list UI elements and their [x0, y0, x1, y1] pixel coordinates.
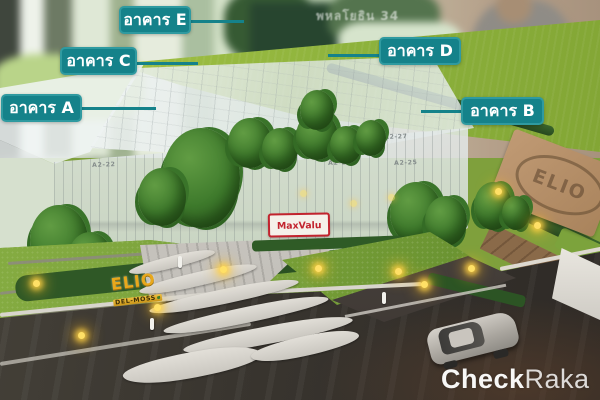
project-subtitle-label: DEL-MOSS — [115, 295, 156, 307]
model-tree — [138, 168, 186, 226]
window-signage-text: พหลโยธิน 34 — [316, 7, 400, 26]
roof-unit-label: A2-25 — [394, 159, 418, 167]
callout-building-a: อาคาร A — [1, 94, 82, 122]
interior-light — [388, 194, 395, 201]
model-tree — [300, 90, 334, 130]
model-light — [220, 266, 227, 273]
figurine — [150, 318, 154, 330]
watermark-light-text: Raka — [525, 364, 590, 394]
model-light — [78, 332, 85, 339]
model-light — [421, 281, 428, 288]
model-light — [495, 188, 502, 195]
maxvalu-sign-text: MaxValu — [277, 219, 322, 231]
callout-building-c: อาคาร C — [60, 47, 137, 75]
model-light — [315, 265, 322, 272]
model-tree — [502, 196, 530, 230]
model-tree — [356, 120, 386, 156]
figurine — [178, 256, 182, 268]
callout-line-building-b — [421, 110, 462, 113]
model-light — [33, 280, 40, 287]
callout-line-building-c — [136, 62, 198, 65]
interior-light — [350, 200, 357, 207]
maxvalu-sign: MaxValu — [268, 212, 330, 237]
model-light — [395, 268, 402, 275]
interior-light — [300, 190, 307, 197]
model-tree — [262, 128, 298, 170]
project-subtitle-text: DEL-MOSS — [113, 294, 162, 307]
callout-line-building-d — [328, 54, 380, 57]
leaf-icon — [157, 296, 160, 299]
callout-building-e: อาคาร E — [119, 6, 191, 34]
callout-building-b: อาคาร B — [461, 97, 544, 125]
showroom-model-photo: พหลโยธิน 34 ELIO A2-26 A2-25 A2-27 A2-24… — [0, 0, 600, 400]
model-light — [534, 222, 541, 229]
roof-unit-label: A2-27 — [384, 133, 408, 141]
callout-building-d: อาคาร D — [379, 37, 461, 65]
model-light — [468, 265, 475, 272]
roof-unit-label: A2-22 — [92, 161, 116, 169]
checkraka-watermark: CheckRaka — [441, 364, 590, 395]
callout-line-building-a — [81, 107, 156, 110]
figurine — [382, 292, 386, 304]
callout-line-building-e — [190, 20, 244, 23]
watermark-bold-text: Check — [441, 364, 525, 394]
